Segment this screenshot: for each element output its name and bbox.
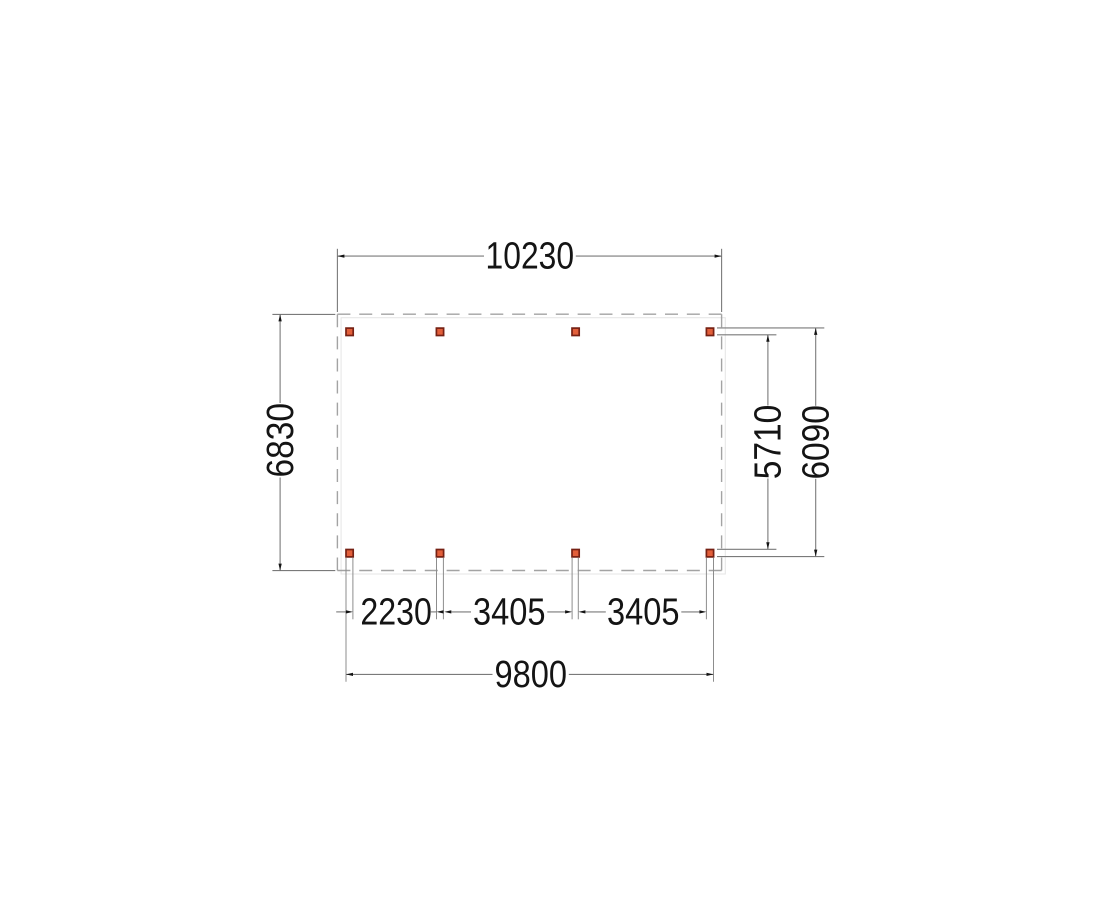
svg-text:6090: 6090 bbox=[794, 405, 836, 480]
svg-text:9800: 9800 bbox=[495, 653, 568, 695]
svg-text:10230: 10230 bbox=[486, 235, 575, 277]
svg-text:5710: 5710 bbox=[747, 405, 789, 480]
svg-text:3405: 3405 bbox=[473, 591, 546, 633]
svg-text:6830: 6830 bbox=[259, 403, 301, 478]
svg-text:2230: 2230 bbox=[360, 591, 432, 633]
svg-text:3405: 3405 bbox=[607, 591, 680, 633]
